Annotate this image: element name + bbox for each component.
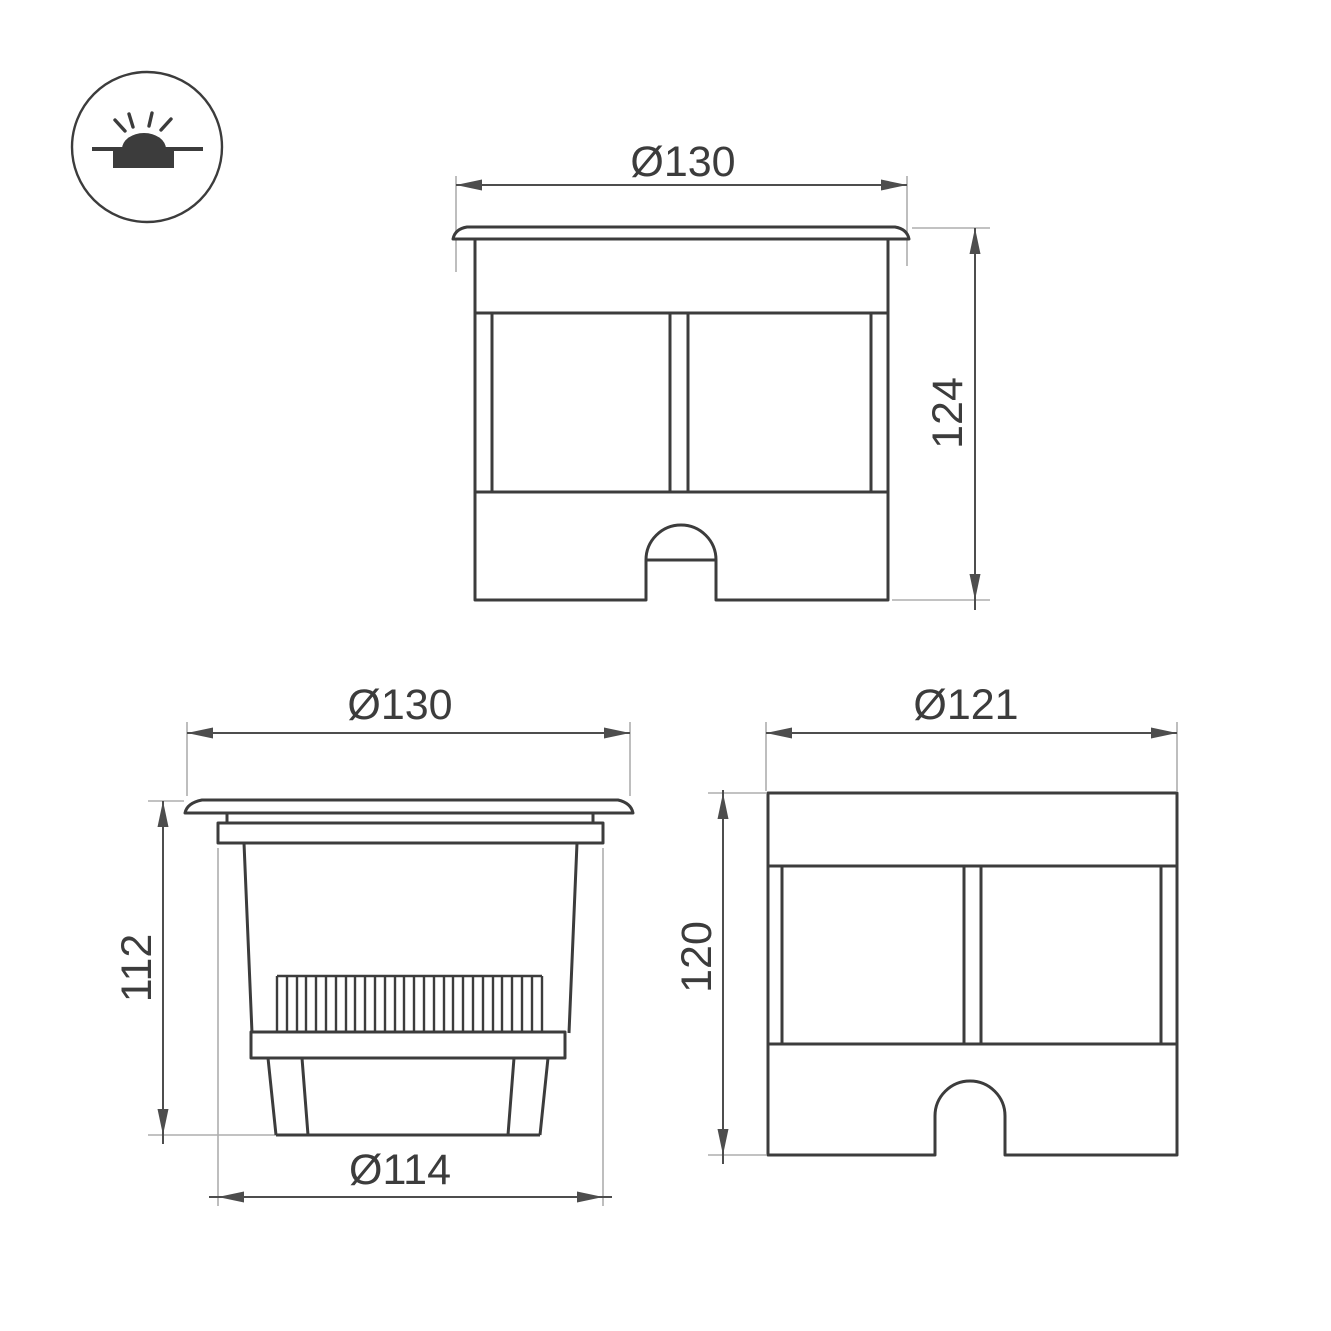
side-heatsink-fins xyxy=(277,976,542,1032)
front-flange xyxy=(453,227,909,239)
side-section-view: Ø130 112 Ø114 xyxy=(113,681,633,1206)
body-front-view: Ø121 120 xyxy=(673,681,1177,1164)
icon-light-rays xyxy=(115,113,171,131)
body-width-dimension-label: Ø121 xyxy=(913,681,1018,729)
side-view-extension-lines xyxy=(148,722,630,1206)
front-view-part xyxy=(453,227,909,600)
technical-drawing-sheet: Ø130 124 xyxy=(0,0,1331,1331)
icon-light-dome xyxy=(122,133,166,149)
drawing-canvas: Ø130 124 xyxy=(0,0,1331,1331)
side-mounting-collar xyxy=(218,823,603,843)
side-flange xyxy=(185,800,633,813)
body-window-mullions xyxy=(782,866,1161,1044)
icon-recessed-housing xyxy=(113,149,174,168)
body-height-dimension-label: 120 xyxy=(673,921,721,993)
side-bottom-dimension-label: Ø114 xyxy=(349,1146,451,1194)
body-view-extension-lines xyxy=(708,722,1177,1155)
body-view-part xyxy=(768,793,1177,1155)
front-body-outline xyxy=(475,239,888,600)
side-lower-housing xyxy=(268,1058,548,1135)
body-outline xyxy=(768,793,1177,1155)
side-height-dimension-label: 112 xyxy=(113,934,161,1003)
front-width-dimension-label: Ø130 xyxy=(630,138,735,186)
recessed-ground-light-icon xyxy=(72,72,222,222)
side-mounting-plate xyxy=(251,1032,565,1058)
front-view: Ø130 124 xyxy=(453,138,990,610)
front-window-mullions xyxy=(492,313,871,492)
side-inner-body-walls xyxy=(244,843,577,1033)
front-view-dimension-lines xyxy=(456,180,981,611)
side-width-dimension-label: Ø130 xyxy=(347,681,452,729)
side-view-part xyxy=(185,800,633,1135)
front-height-dimension-label: 124 xyxy=(924,377,972,449)
